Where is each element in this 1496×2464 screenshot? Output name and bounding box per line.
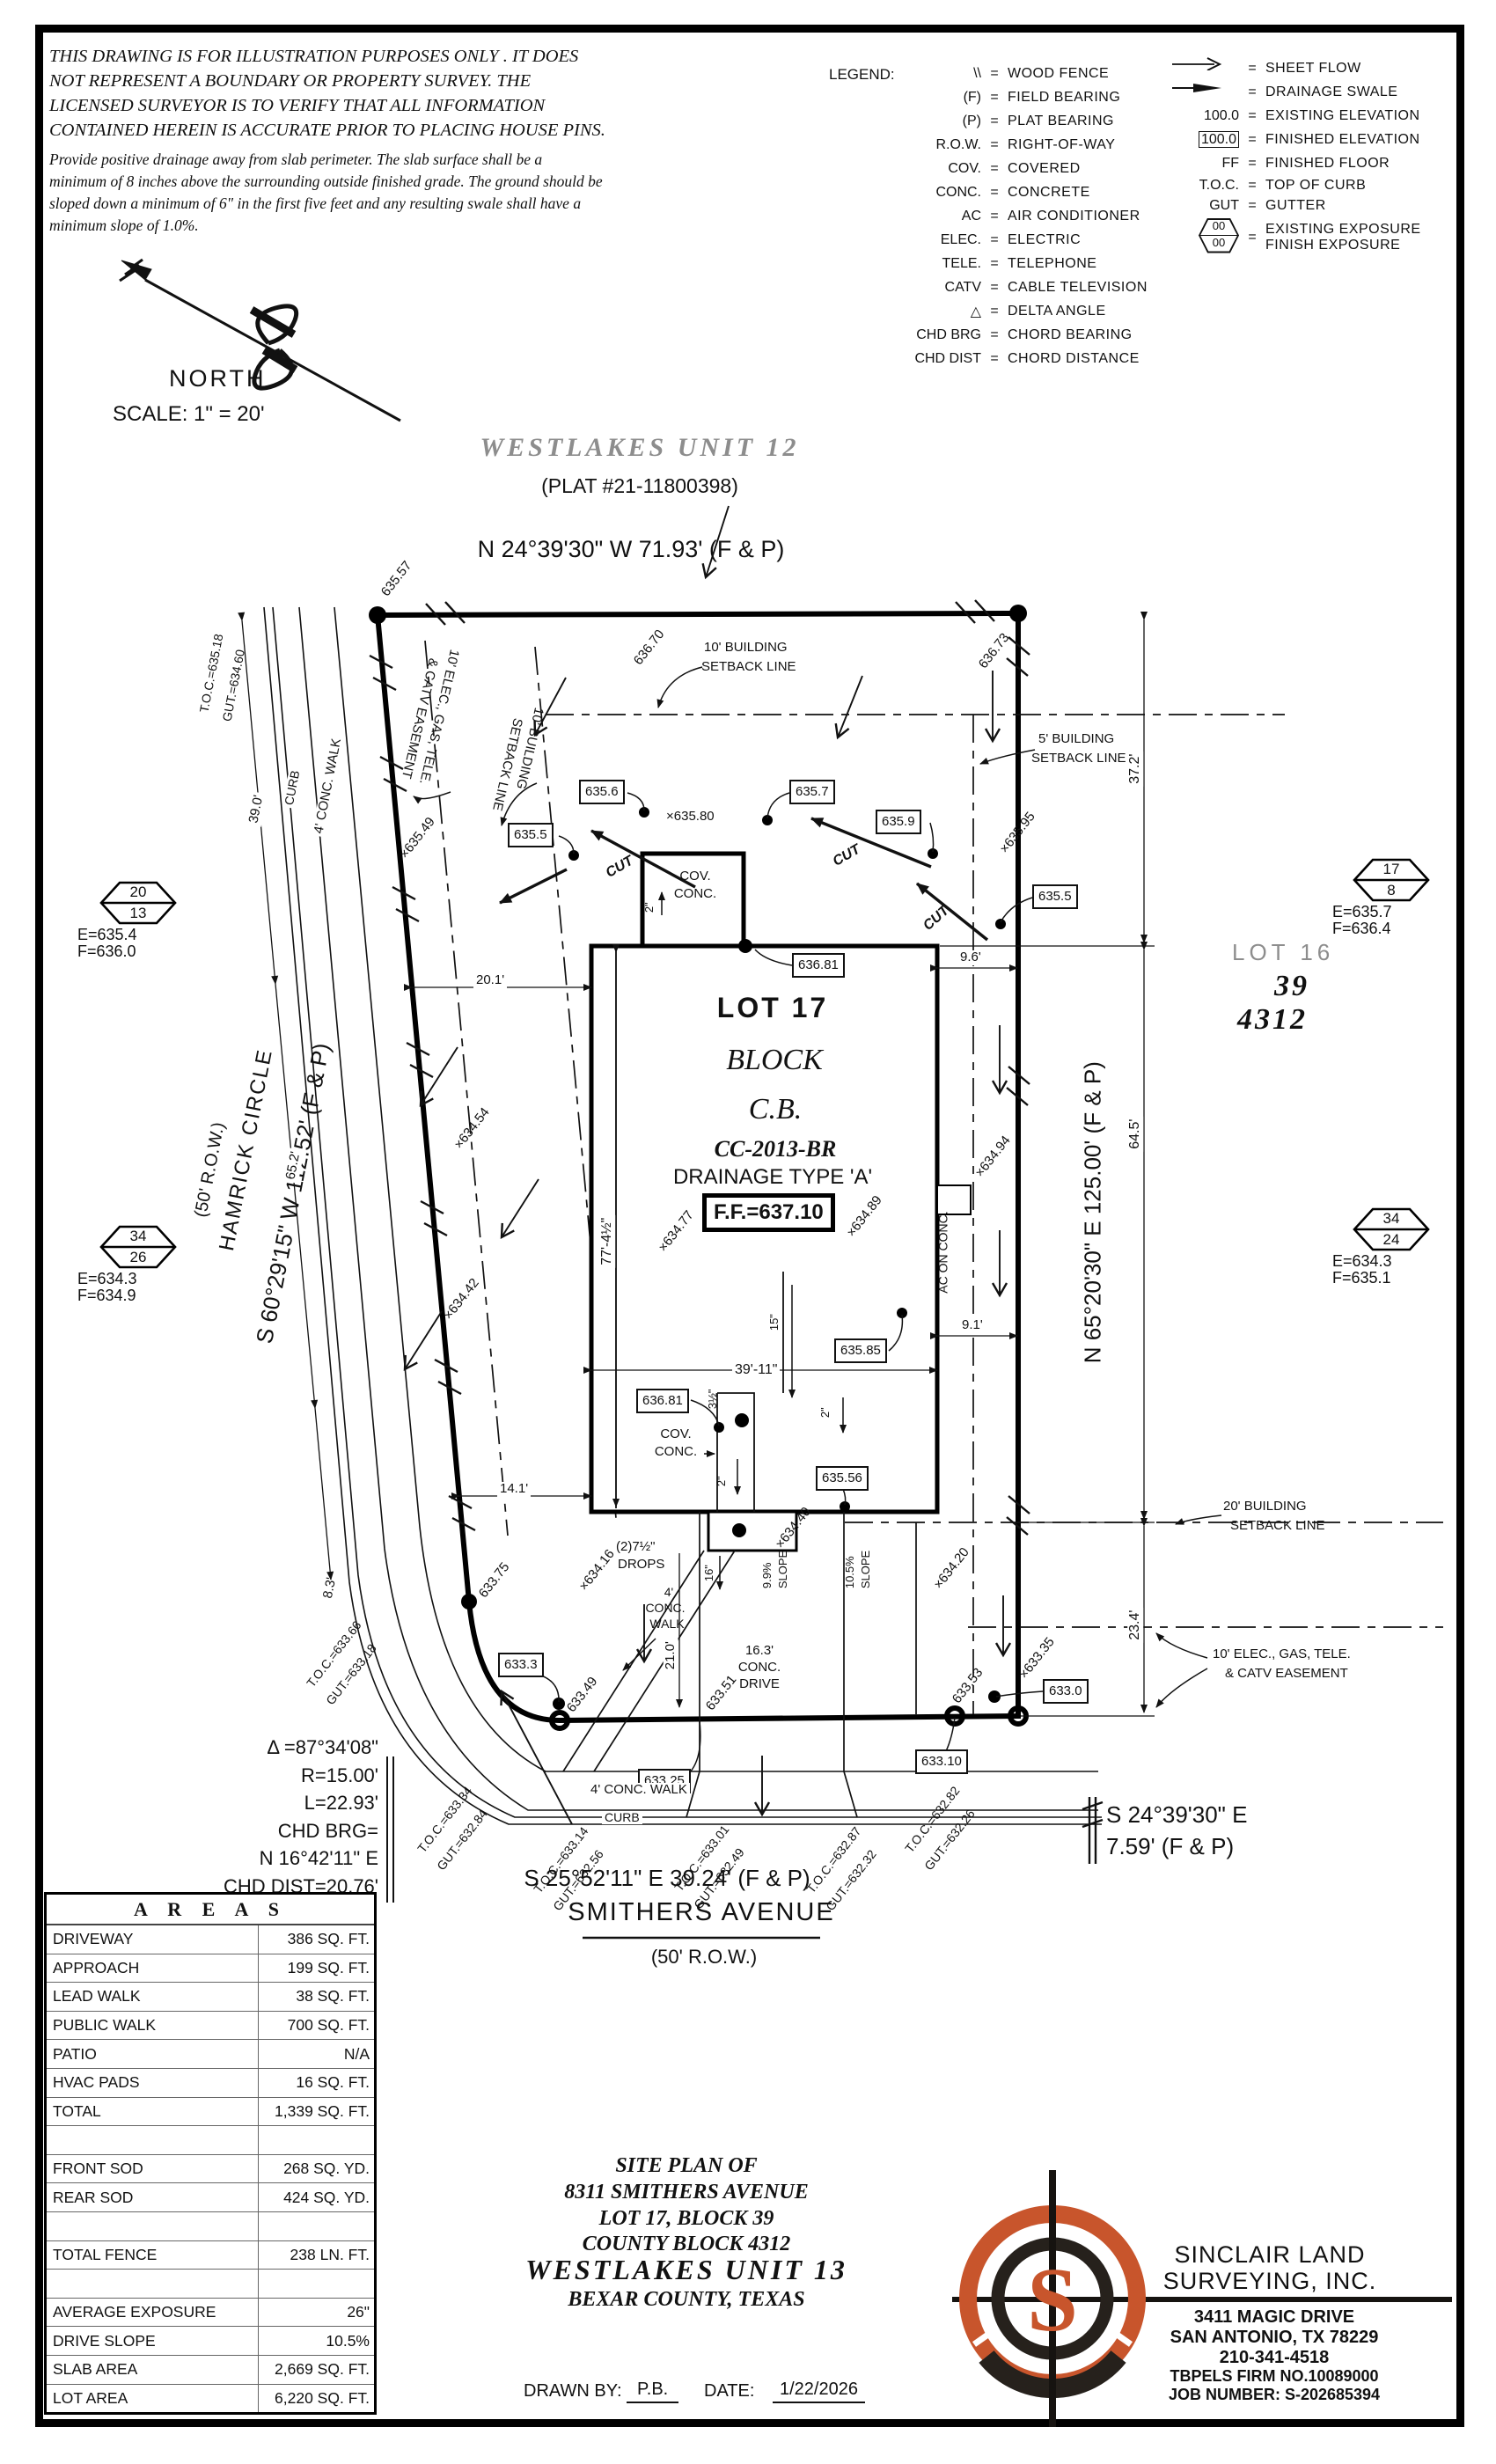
ac-pad-label: AC ON CONC. xyxy=(936,1211,950,1293)
table-row: SLAB AREA2,669 SQ. FT. xyxy=(47,2355,374,2384)
table-row: TOTAL1,339 SQ. FT. xyxy=(47,2097,374,2126)
table-row: PATION/A xyxy=(47,2040,374,2069)
se-jog xyxy=(1082,1797,1103,1864)
legend-eq: = xyxy=(981,185,1008,201)
area-label: DRIVE SLOPE xyxy=(47,2327,259,2356)
legend-desc: WOOD FENCE xyxy=(1008,66,1109,82)
table-row: APPROACH199 SQ. FT. xyxy=(47,1954,374,1983)
legend-desc: ELECTRIC xyxy=(1008,232,1081,248)
finished-elevation: 635.7 xyxy=(789,780,835,804)
table-row: LEAD WALK38 SQ. FT. xyxy=(47,1983,374,2012)
plat-number: (PLAT #21-11800398) xyxy=(541,475,738,497)
legend-desc-line: EXISTING EXPOSURE xyxy=(1265,222,1421,238)
lot17-drainage-type: DRAINAGE TYPE 'A' xyxy=(673,1166,872,1189)
front-setback-label: SETBACK LINE xyxy=(701,660,796,675)
legend-eq: = xyxy=(1239,108,1265,124)
legend-eq: = xyxy=(981,209,1008,224)
finished-elevation: 635.56 xyxy=(816,1466,869,1491)
dim-9-6: 9.6' xyxy=(957,950,984,965)
area-value xyxy=(259,2211,375,2240)
marker-finish: F=636.4 xyxy=(1332,920,1391,938)
legend-sym: TELE. xyxy=(884,256,981,272)
legend-sym: 100.0 xyxy=(1170,108,1239,124)
legend-eq: = xyxy=(1239,178,1265,194)
lead-walk-label: CONC. xyxy=(645,1602,685,1615)
drive-slope-word: SLOPE xyxy=(860,1551,872,1588)
covered-concrete-label: CONC. xyxy=(655,1445,697,1460)
legend-sym: 100.0 xyxy=(1199,131,1239,148)
table-row: LOT AREA6,220 SQ. FT. xyxy=(47,2384,374,2412)
legend-desc: DRAINAGE SWALE xyxy=(1265,84,1397,100)
north-arrow-icon xyxy=(120,260,400,421)
table-row: PUBLIC WALK700 SQ. FT. xyxy=(47,2011,374,2040)
legend-sym: CATV xyxy=(884,280,981,296)
finished-elev-sym: 100.0 xyxy=(1170,132,1239,148)
table-row xyxy=(47,2270,374,2299)
legend-desc: RIGHT-OF-WAY xyxy=(1008,137,1115,153)
curve-data: Δ =87°34'08" R=15.00' L=22.93' CHD BRG= … xyxy=(132,1734,378,1900)
dim-77-4h: 77'-4½" xyxy=(599,1215,615,1268)
dim-37-2: 37.2' xyxy=(1127,752,1143,787)
legend-eq: = xyxy=(1239,230,1265,246)
table-row: REAR SOD424 SQ. YD. xyxy=(47,2183,374,2212)
dim-16in: 16" xyxy=(703,1565,715,1581)
legend-desc: GUTTER xyxy=(1265,198,1326,214)
drive-slope-value: 9.9% xyxy=(761,1563,774,1589)
area-value: 6,220 SQ. FT. xyxy=(259,2384,375,2412)
marker-finish: F=636.0 xyxy=(77,943,136,961)
curve-chord-bearing: N 16°42'11" E xyxy=(132,1844,378,1873)
dim-2in: 2" xyxy=(819,1407,832,1418)
dim-2in: 2" xyxy=(643,902,656,913)
legend-desc-line: FINISH EXPOSURE xyxy=(1265,238,1421,253)
legend-sym: AC xyxy=(884,209,981,224)
drops-label: DROPS xyxy=(618,1558,664,1573)
area-value: N/A xyxy=(259,2040,375,2069)
legend-eq: = xyxy=(981,351,1008,367)
marker-top: 20 xyxy=(101,884,175,901)
legend-desc: FINISHED ELEVATION xyxy=(1265,132,1420,148)
legend-desc: PLAT BEARING xyxy=(1008,114,1114,129)
north-label: NORTH xyxy=(169,366,267,392)
legend-desc: CHORD BEARING xyxy=(1008,327,1133,343)
legend-desc: FINISHED FLOOR xyxy=(1265,156,1390,172)
area-value: 16 SQ. FT. xyxy=(259,2068,375,2097)
drive-slope-word: SLOPE xyxy=(777,1551,789,1588)
legend-sym: 00 xyxy=(1199,219,1239,232)
legend-eq: = xyxy=(981,280,1008,296)
legend-desc: EXISTING EXPOSUREFINISH EXPOSURE xyxy=(1265,222,1421,253)
area-label: AVERAGE EXPOSURE xyxy=(47,2298,259,2327)
area-label: HVAC PADS xyxy=(47,2068,259,2097)
finished-elevation: 633.10 xyxy=(915,1749,968,1774)
legend-sym: T.O.C. xyxy=(1170,178,1239,194)
area-value: 199 SQ. FT. xyxy=(259,1954,375,1983)
dim-20-1: 20.1' xyxy=(473,973,507,988)
finished-elevation: 635.6 xyxy=(579,780,625,804)
legend-sym: CONC. xyxy=(884,185,981,201)
legend-eq: = xyxy=(981,161,1008,177)
marker-top: 34 xyxy=(1354,1210,1428,1228)
marker-bottom: 8 xyxy=(1354,882,1428,899)
legend-desc: DELTA ANGLE xyxy=(1008,304,1106,319)
company-firm-number: TBPELS FIRM NO.10089000 xyxy=(1170,2368,1378,2386)
curve-length: L=22.93' xyxy=(132,1789,378,1817)
marker-existing: E=635.4 xyxy=(77,927,137,944)
areas-title: A R E A S xyxy=(47,1895,374,1925)
legend-sym: FF xyxy=(1170,156,1239,172)
legend-sym: R.O.W. xyxy=(884,137,981,153)
curve-chord-bearing-label: CHD BRG= xyxy=(132,1817,378,1845)
front-setback-label: 10' BUILDING xyxy=(704,641,788,656)
legend-desc: CONCRETE xyxy=(1008,185,1090,201)
area-value: 386 SQ. FT. xyxy=(259,1925,375,1954)
disclaimer-note: THIS DRAWING IS FOR ILLUSTRATION PURPOSE… xyxy=(49,44,700,237)
area-value xyxy=(259,2270,375,2299)
finished-elevation: 633.3 xyxy=(498,1653,544,1677)
titleblock-line: SITE PLAN OF xyxy=(615,2154,757,2177)
covered-concrete-label: CONC. xyxy=(674,887,716,902)
area-label: SLAB AREA xyxy=(47,2355,259,2384)
rear-setback-label: 20' BUILDING xyxy=(1223,1500,1307,1514)
areas-table: A R E A S DRIVEWAY386 SQ. FT. APPROACH19… xyxy=(44,1892,377,2415)
area-value xyxy=(259,2126,375,2155)
area-value: 424 SQ. YD. xyxy=(259,2183,375,2212)
dim-23-4: 23.4' xyxy=(1127,1608,1143,1643)
area-value: 700 SQ. FT. xyxy=(259,2011,375,2040)
drainage-note-line: sloped down a minimum of 6" in the first… xyxy=(49,193,700,215)
drainage-note-line: Provide positive drainage away from slab… xyxy=(49,149,700,171)
area-label xyxy=(47,2126,259,2155)
dim-15in: 15" xyxy=(768,1314,781,1331)
curb-label: CURB xyxy=(602,1811,642,1824)
logo-letter: S xyxy=(1027,2249,1078,2350)
dim-14-1: 14.1' xyxy=(497,1482,531,1497)
legend-sym: 00 xyxy=(1199,235,1239,249)
titleblock-line: COUNTY BLOCK 4312 xyxy=(583,2233,790,2255)
area-label: PUBLIC WALK xyxy=(47,2011,259,2040)
company-name: SURVEYING, INC. xyxy=(1163,2269,1377,2295)
bearing-north-line: N 24°39'30" W 71.93' (F & P) xyxy=(478,537,785,563)
legend-sym: CHD BRG xyxy=(884,327,981,343)
marker-existing: E=635.7 xyxy=(1332,904,1392,921)
table-row: HVAC PADS16 SQ. FT. xyxy=(47,2068,374,2097)
titleblock-county: BEXAR COUNTY, TEXAS xyxy=(568,2288,804,2311)
table-row xyxy=(47,2126,374,2155)
area-label: LOT AREA xyxy=(47,2384,259,2412)
drainage-note-line: minimum of 8 inches above the surroundin… xyxy=(49,171,700,193)
titleblock-line: LOT 17, BLOCK 39 xyxy=(599,2207,774,2230)
area-value: 38 SQ. FT. xyxy=(259,1983,375,2012)
drive-label: CONC. xyxy=(738,1661,781,1676)
legend-eq: = xyxy=(1239,132,1265,148)
legend-eq: = xyxy=(981,327,1008,343)
company-name: SINCLAIR LAND xyxy=(1174,2242,1365,2269)
legend-desc: COVERED xyxy=(1008,161,1081,177)
lead-walk-label: WALK xyxy=(649,1617,684,1631)
titleblock-subdivision: WESTLAKES UNIT 13 xyxy=(525,2255,847,2285)
area-label: FRONT SOD xyxy=(47,2154,259,2183)
south-easement-label: & CATV EASEMENT xyxy=(1225,1667,1348,1682)
finished-elevation: 633.0 xyxy=(1043,1679,1089,1704)
table-row: DRIVEWAY386 SQ. FT. xyxy=(47,1925,374,1954)
legend-desc: TELEPHONE xyxy=(1008,256,1096,272)
scale-label: SCALE: 1" = 20' xyxy=(113,403,265,426)
side-setback-label: 5' BUILDING xyxy=(1038,732,1114,747)
lot16-name: LOT 16 xyxy=(1232,940,1334,965)
finished-floor-elevation: F.F.=637.10 xyxy=(702,1193,835,1232)
legend-desc: FIELD BEARING xyxy=(1008,90,1120,106)
drive-slope-value: 10.5% xyxy=(844,1556,856,1588)
finished-elevation: 635.5 xyxy=(508,823,554,847)
lot16-cb: 4312 xyxy=(1237,1003,1308,1036)
legend-sym: ELEC. xyxy=(884,232,981,248)
bearing-east-line: N 65°20'30" E 125.00' (F & P) xyxy=(1081,1061,1106,1363)
delta-icon: △ xyxy=(884,303,981,320)
walk-label: 4' CONC. WALK xyxy=(588,1783,690,1798)
area-value: 238 LN. FT. xyxy=(259,2240,375,2270)
table-row xyxy=(47,2211,374,2240)
subdivision-title: WESTLAKES UNIT 12 xyxy=(480,433,799,462)
bearing-se-line1: S 24°39'30" E xyxy=(1106,1802,1247,1828)
marker-existing: E=634.3 xyxy=(77,1271,137,1288)
area-value: 268 SQ. YD. xyxy=(259,2154,375,2183)
rear-setback-label: SETBACK LINE xyxy=(1230,1519,1325,1534)
area-label: PATIO xyxy=(47,2040,259,2069)
disclaimer-line: LICENSED SURVEYOR IS TO VERIFY THAT ALL … xyxy=(49,93,700,118)
dim-39-11: 39'-11" xyxy=(732,1362,780,1378)
exposure-hexagon-icon: 00 00 xyxy=(1170,218,1239,258)
drawn-by-value: P.B. xyxy=(627,2380,678,2403)
disclaimer-line: THIS DRAWING IS FOR ILLUSTRATION PURPOSE… xyxy=(49,44,700,69)
company-job-number: JOB NUMBER: S-202685394 xyxy=(1169,2387,1380,2404)
titleblock-line: 8311 SMITHERS AVENUE xyxy=(564,2181,808,2204)
bearing-se-line2: 7.59' (F & P) xyxy=(1106,1834,1234,1859)
side-setback-label: SETBACK LINE xyxy=(1031,752,1126,766)
legend-desc: TOP OF CURB xyxy=(1265,178,1366,194)
date-label: DATE: xyxy=(704,2381,754,2401)
area-value: 26" xyxy=(259,2298,375,2327)
table-row: TOTAL FENCE238 LN. FT. xyxy=(47,2240,374,2270)
legend-eq: = xyxy=(981,90,1008,106)
area-value: 10.5% xyxy=(259,2327,375,2356)
marker-finish: F=635.1 xyxy=(1332,1270,1391,1287)
legend-eq: = xyxy=(1239,198,1265,214)
finished-elevation: 636.81 xyxy=(792,953,845,978)
site-plan-sheet: S THIS DRAWING IS FOR ILLUSTRATION PURPO… xyxy=(0,0,1496,2464)
legend-eq: = xyxy=(981,66,1008,82)
legend-desc: AIR CONDITIONER xyxy=(1008,209,1140,224)
area-value: 2,669 SQ. FT. xyxy=(259,2355,375,2384)
area-label: REAR SOD xyxy=(47,2183,259,2212)
legend-sym: CHD DIST xyxy=(884,351,981,367)
marker-finish: F=634.9 xyxy=(77,1287,136,1305)
legend-eq: = xyxy=(1239,61,1265,77)
company-phone: 210-341-4518 xyxy=(1220,2348,1330,2367)
marker-top: 34 xyxy=(101,1228,175,1245)
legend-eq: = xyxy=(981,232,1008,248)
dim-9-1: 9.1' xyxy=(959,1318,986,1333)
curve-separator xyxy=(387,1756,393,1903)
legend-eq: = xyxy=(981,304,1008,319)
curve-delta: Δ =87°34'08" xyxy=(132,1734,378,1762)
marker-bottom: 24 xyxy=(1354,1231,1428,1249)
covered-concrete-label: COV. xyxy=(679,869,710,884)
legend-desc: EXISTING ELEVATION xyxy=(1265,108,1420,124)
lot17-plan-code: CC-2013-BR xyxy=(715,1137,837,1162)
dim-21-0: 21.0' xyxy=(664,1639,678,1672)
drive-dim: 16.3' xyxy=(745,1644,774,1659)
lead-walk-label: 4' xyxy=(664,1586,673,1599)
dim-2in: 2" xyxy=(715,1476,728,1486)
dim-64-5: 64.5' xyxy=(1127,1117,1143,1152)
finished-elevation: 636.81 xyxy=(636,1389,689,1413)
drive-label: DRIVE xyxy=(739,1677,780,1692)
area-value: 1,339 SQ. FT. xyxy=(259,2097,375,2126)
legend-sym: \\ xyxy=(884,66,981,82)
table-row: AVERAGE EXPOSURE26" xyxy=(47,2298,374,2327)
legend-desc: CABLE TELEVISION xyxy=(1008,280,1148,296)
lot17-block: BLOCK xyxy=(726,1044,823,1076)
finished-elevation: 635.9 xyxy=(876,810,921,834)
company-address: 3411 MAGIC DRIVE xyxy=(1194,2307,1354,2327)
south-easement-label: 10' ELEC., GAS, TELE. xyxy=(1213,1647,1351,1662)
area-label xyxy=(47,2270,259,2299)
existing-elevation: ×635.80 xyxy=(666,810,715,825)
finished-elevation: 635.5 xyxy=(1032,884,1078,909)
legend-eq: = xyxy=(981,137,1008,153)
covered-concrete-label: COV. xyxy=(660,1427,691,1442)
curve-radius: R=15.00' xyxy=(132,1762,378,1790)
legend-sym: (F) xyxy=(884,90,981,106)
legend-desc: CHORD DISTANCE xyxy=(1008,351,1140,367)
table-row: FRONT SOD268 SQ. YD. xyxy=(47,2154,374,2183)
area-label: TOTAL FENCE xyxy=(47,2240,259,2270)
dim-3h-in: 3½" xyxy=(707,1389,719,1409)
date-value: 1/22/2026 xyxy=(773,2380,865,2403)
drawn-by-label: DRAWN BY: xyxy=(524,2381,622,2401)
area-label: DRIVEWAY xyxy=(47,1925,259,1954)
lot16-block: 39 xyxy=(1274,970,1309,1002)
south-street-row: (50' R.O.W.) xyxy=(651,1947,757,1968)
table-row: DRIVE SLOPE10.5% xyxy=(47,2327,374,2356)
legend-sym: GUT xyxy=(1170,198,1239,214)
marker-bottom: 26 xyxy=(101,1249,175,1266)
marker-top: 17 xyxy=(1354,861,1428,878)
lot17-name: LOT 17 xyxy=(717,993,828,1023)
marker-existing: E=634.3 xyxy=(1332,1253,1392,1271)
company-address: SAN ANTONIO, TX 78229 xyxy=(1170,2328,1379,2347)
lot17-cb: C.B. xyxy=(749,1093,802,1126)
legend-eq: = xyxy=(1239,156,1265,172)
disclaimer-line: CONTAINED HEREIN IS ACCURATE PRIOR TO PL… xyxy=(49,118,700,143)
legend-desc: SHEET FLOW xyxy=(1265,61,1361,77)
area-label: APPROACH xyxy=(47,1954,259,1983)
area-label xyxy=(47,2211,259,2240)
legend-eq: = xyxy=(1239,84,1265,100)
legend-eq: = xyxy=(981,256,1008,272)
legend-eq: = xyxy=(981,114,1008,129)
area-label: TOTAL xyxy=(47,2097,259,2126)
finished-elevation: 635.85 xyxy=(834,1338,887,1363)
disclaimer-line: NOT REPRESENT A BOUNDARY OR PROPERTY SUR… xyxy=(49,69,700,93)
legend-sym: (P) xyxy=(884,114,981,129)
legend-sym: COV. xyxy=(884,161,981,177)
drainage-note-line: minimum slope of 1.0%. xyxy=(49,215,700,237)
area-label: LEAD WALK xyxy=(47,1983,259,2012)
drops-label: (2)7½" xyxy=(616,1540,656,1555)
marker-bottom: 13 xyxy=(101,905,175,922)
